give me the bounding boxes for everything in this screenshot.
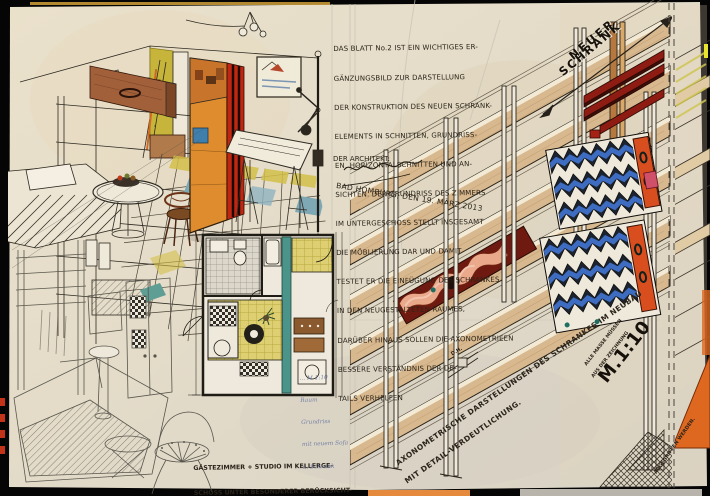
bottom-edge-orange-strip <box>368 490 470 496</box>
top-edge-orange-line <box>30 2 330 5</box>
note-line: IM UNTERGESCHOSS STELLT INSGESAMT <box>336 218 512 230</box>
note-line: TESTET ER DIE EINFÜGUNG DES SCHRANKES <box>337 276 513 288</box>
bottom-edge-gray-strip <box>520 489 702 496</box>
faint-note-line: u. Schrank <box>303 463 349 472</box>
architect-label: DER ARCHITEKT: <box>333 155 390 163</box>
film-edge-marks <box>0 398 5 454</box>
sheet-photo: DAS BLATT No.2 IST EIN WICHTIGES ER- GÄN… <box>0 0 710 496</box>
cabinet-blue-panel <box>193 128 208 143</box>
note-line: IN DEN NEUGESTALTETEN RAUMES, <box>337 305 513 317</box>
picture-frame <box>257 57 301 97</box>
plan-teal-strip <box>282 237 291 393</box>
note-line: DARÜBER HINAUS SOLLEN DIE AXONOMETRIEEN <box>337 334 513 346</box>
note-line: BESSERE VERSTÄNDNIS DER DE- <box>338 363 514 375</box>
note-line: DIE MÖBLIERUNG DAR UND DAMIT <box>336 247 512 259</box>
plan-caption-line: SCHOSS UNTER BESONDERER BERÜCKSICHT- <box>194 487 352 496</box>
note-line: DER KONSTRUKTION DES NEUEN SCHRANK- <box>334 101 510 113</box>
faint-pen-note: ... M 1:10 Raum Grundriss mit neuem Sofa… <box>299 359 349 479</box>
note-line: ELEMENTS IN SCHNITTEN, GRUNDRISS- <box>334 130 510 142</box>
faint-note-line: Grundriss <box>301 419 347 428</box>
yellow-tick <box>704 44 708 58</box>
note-line: DAS BLATT No.2 IST EIN WICHTIGES ER- <box>333 43 509 55</box>
faint-note-line: mit neuem Sofa <box>302 441 348 450</box>
note-line: GÄNZUNGSBILD ZUR DARSTELLUNG <box>334 72 510 84</box>
plan-bed <box>208 302 238 358</box>
red-handle-detail <box>644 171 659 189</box>
accordion-unit-upper <box>546 132 662 229</box>
sheet-description-text: DAS BLATT No.2 IST EIN WICHTIGES ER- GÄN… <box>333 24 515 415</box>
faint-note-line: Raum <box>300 396 346 405</box>
faint-note-line: ... M 1:10 <box>300 374 346 383</box>
